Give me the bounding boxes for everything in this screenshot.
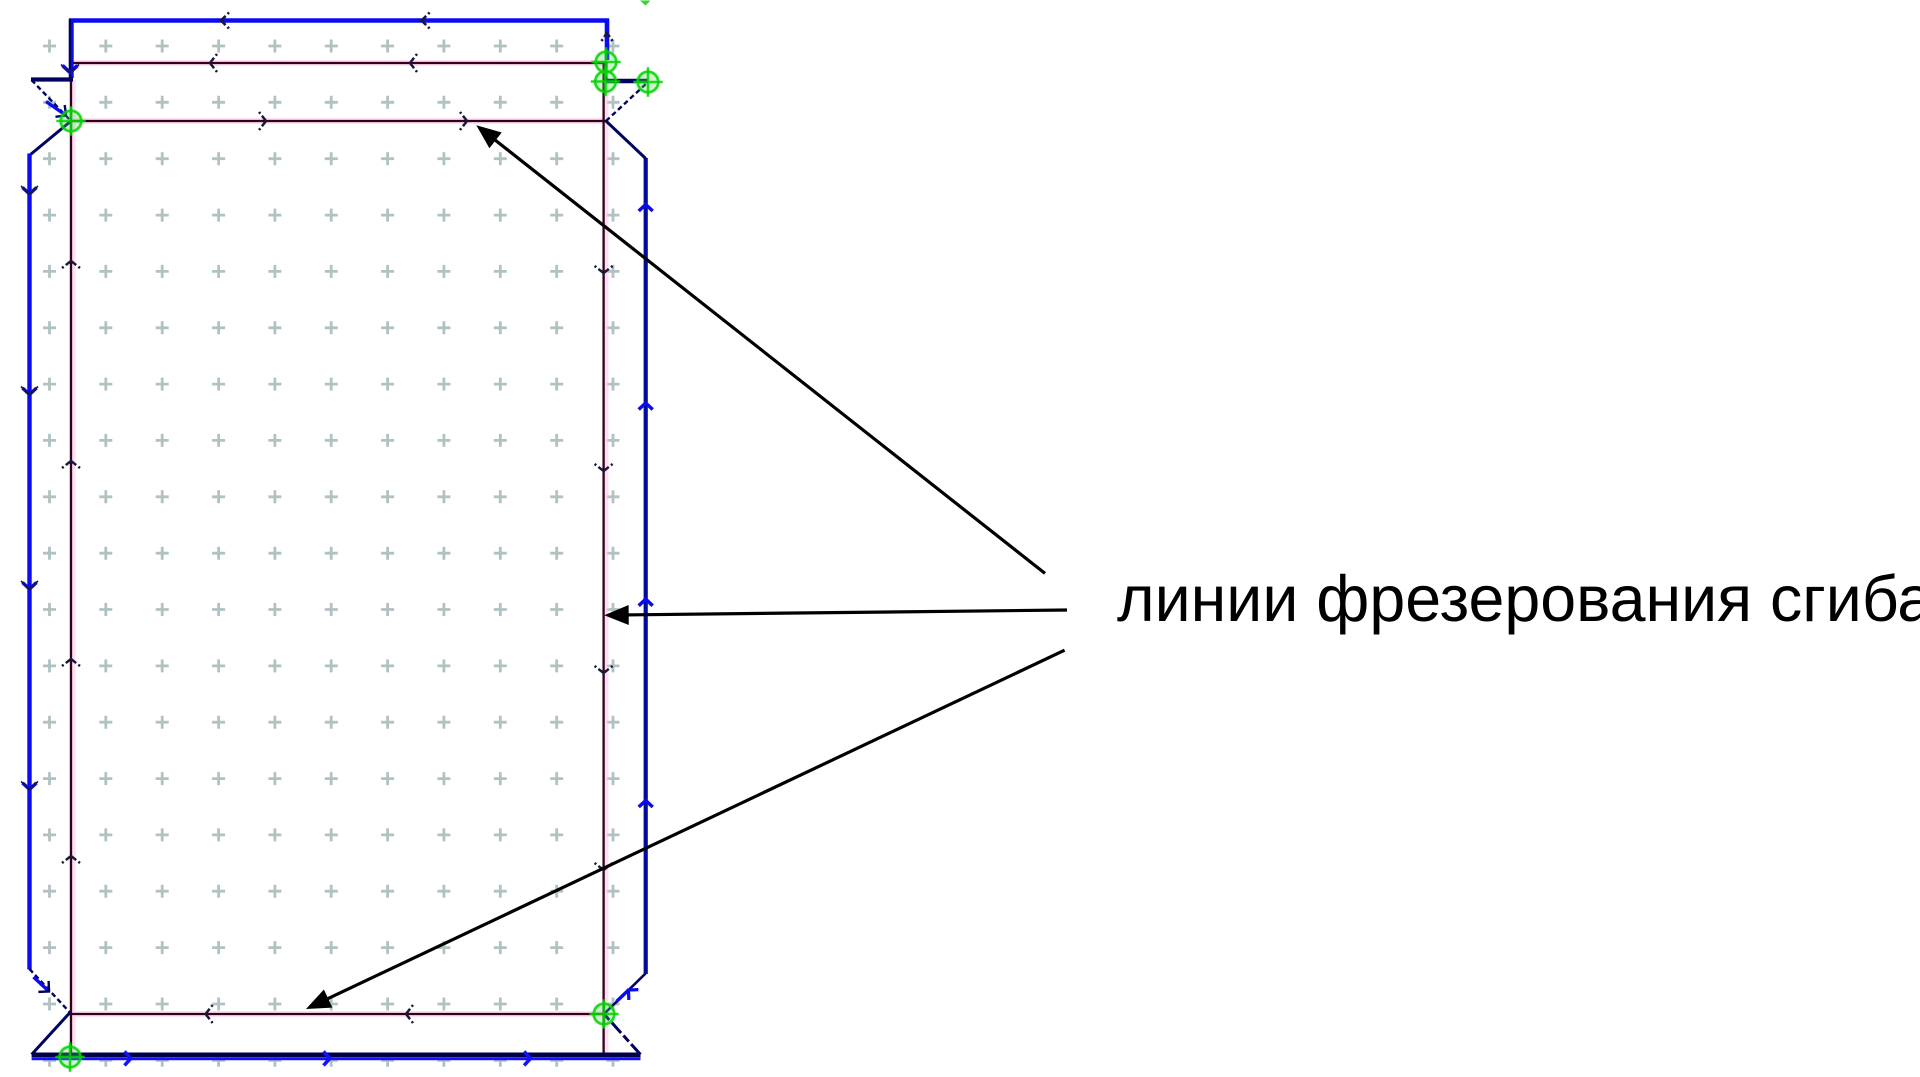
svg-text:линии фрезерования сгиба: линии фрезерования сгиба <box>1117 563 1920 635</box>
